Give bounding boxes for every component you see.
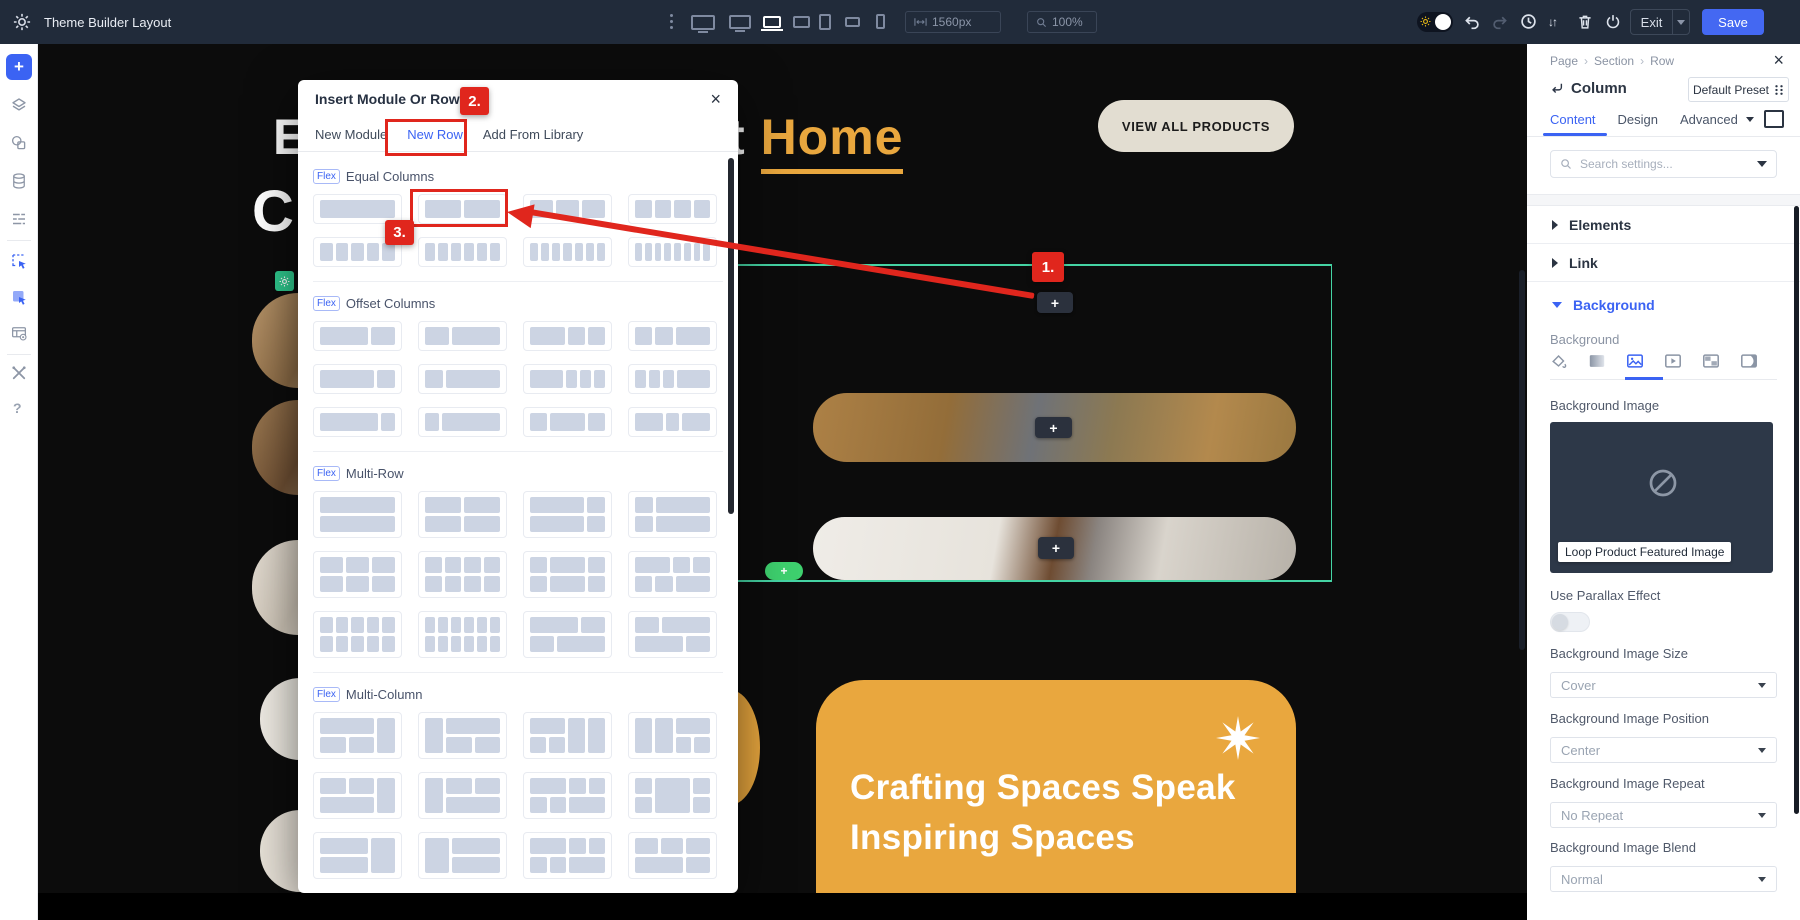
search-input[interactable] [1578, 156, 1751, 172]
row-layout-option[interactable] [418, 321, 507, 351]
breadcrumb[interactable]: Page›Section›Row [1550, 54, 1674, 68]
row-layout-option[interactable] [523, 772, 612, 819]
dropdown-background-image-size[interactable]: Cover [1550, 672, 1777, 698]
tablet-landscape-icon[interactable] [793, 16, 810, 28]
group-link[interactable]: Link [1527, 244, 1800, 282]
modal-scrollbar[interactable] [728, 158, 734, 514]
tab-design[interactable]: Design [1618, 112, 1658, 127]
save-button[interactable]: Save [1702, 9, 1764, 35]
canvas-scrollbar[interactable] [1519, 270, 1525, 650]
row-layout-option[interactable] [418, 491, 507, 538]
row-layout-option[interactable] [418, 551, 507, 598]
row-layout-option[interactable] [418, 832, 507, 879]
field-label: Background Image Position [1550, 711, 1709, 726]
more-options-icon[interactable] [670, 14, 673, 32]
no-image-icon [1648, 468, 1678, 498]
flex-badge: Flex [313, 466, 340, 481]
layout-section-label: Offset Columns [346, 296, 435, 311]
group-background[interactable]: Background [1527, 282, 1800, 328]
trash-icon[interactable] [1577, 13, 1593, 30]
selection-border-right [1331, 264, 1332, 582]
field-label: Background Image Blend [1550, 840, 1696, 855]
panel-scrollbar[interactable] [1794, 206, 1799, 814]
view-all-products-button[interactable]: VIEW ALL PRODUCTS [1098, 100, 1294, 152]
dropdown-background-image-blend[interactable]: Normal [1550, 866, 1777, 892]
promo-card-line-2: Inspiring Spaces [850, 818, 1135, 858]
tablet-portrait-icon[interactable] [819, 14, 831, 30]
exit-dropdown-caret[interactable] [1673, 20, 1689, 25]
add-module-plus-button[interactable]: + [1037, 292, 1073, 313]
zoom-value: 100% [1052, 15, 1083, 29]
panel-close-icon[interactable]: × [1773, 50, 1784, 71]
row-layout-option[interactable] [523, 491, 612, 538]
select-module-filled-icon[interactable] [10, 288, 28, 306]
field-label: Background Image Repeat [1550, 776, 1705, 791]
top-bar: Theme Builder Layout 1560px 100% [0, 0, 1800, 44]
row-layout-option[interactable] [313, 712, 402, 759]
canvas-width-control[interactable]: 1560px [905, 11, 1001, 33]
modal-tab-add-from-library[interactable]: Add From Library [483, 127, 583, 142]
builder-canvas: E t Home C VIEW ALL PRODUCTS + + + + [38, 44, 1527, 893]
background-image-label: Background Image [1550, 398, 1659, 413]
divi-theme-builder: Theme Builder Layout 1560px 100% [0, 0, 1800, 920]
dropdown-caret-icon [1758, 813, 1766, 818]
sun-icon [1420, 16, 1431, 27]
row-layout-option[interactable] [313, 832, 402, 879]
row-layout-option[interactable] [628, 772, 717, 819]
breadcrumb-item-row[interactable]: Row [1650, 54, 1674, 68]
bg-image-icon[interactable] [1626, 352, 1644, 370]
flex-badge: Flex [313, 296, 340, 311]
starburst-icon [1216, 716, 1260, 760]
promo-card-line-1: Crafting Spaces Speak [850, 768, 1236, 808]
row-layout-option[interactable] [418, 611, 507, 658]
design-shapes-icon[interactable] [10, 134, 28, 152]
selection-border-top [700, 264, 1332, 266]
modal-tabs: New ModuleNew RowAdd From Library [298, 118, 738, 152]
builder-left-sidebar: + ? [0, 44, 38, 920]
tools-icon[interactable] [10, 364, 28, 382]
add-row-green-button[interactable]: + [765, 562, 803, 580]
search-icon [1560, 158, 1572, 170]
zoom-magnifier-icon [1036, 17, 1047, 28]
row-layout-option[interactable] [418, 772, 507, 819]
settings-gear-icon[interactable] [13, 13, 31, 31]
modal-body: FlexEqual ColumnsFlexOffset ColumnsFlexM… [298, 153, 738, 893]
hero-heading-fragment-left-2: C [252, 178, 295, 245]
tab-content[interactable]: Content [1550, 112, 1596, 127]
row-layout-option[interactable] [523, 321, 612, 351]
row-layout-option[interactable] [628, 712, 717, 759]
panel-title: Column [1571, 80, 1627, 97]
row-layout-option[interactable] [523, 194, 612, 224]
row-layout-option[interactable] [313, 321, 402, 351]
row-layout-option[interactable] [313, 237, 402, 267]
layout-section-label: Multi-Row [346, 466, 404, 481]
bg-pattern-icon[interactable] [1702, 352, 1720, 370]
width-arrows-icon [914, 17, 927, 27]
power-icon[interactable] [1605, 13, 1621, 30]
promo-card[interactable]: Crafting Spaces Speak Inspiring Spaces [816, 680, 1296, 893]
layout-section-label: Multi-Column [346, 687, 423, 702]
dropdown-background-image-position[interactable]: Center [1550, 737, 1777, 763]
chevron-right-icon [1552, 220, 1558, 230]
desktop-large-icon[interactable] [691, 15, 715, 30]
insert-module-modal: Insert Module Or Row × New ModuleNew Row… [298, 80, 738, 893]
add-element-button[interactable]: + [6, 54, 32, 80]
dropdown-caret-icon [1758, 748, 1766, 753]
default-preset-button[interactable]: Default Preset [1688, 77, 1789, 102]
flex-badge: Flex [313, 169, 340, 184]
bg-gradient-icon[interactable] [1588, 352, 1606, 370]
home-link[interactable]: Home [761, 109, 904, 174]
exit-label: Exit [1631, 15, 1672, 30]
add-module-plus-button[interactable]: + [1038, 537, 1074, 559]
row-layout-option[interactable] [313, 194, 402, 224]
row-layout-option[interactable] [418, 237, 507, 267]
parallax-toggle[interactable] [1550, 612, 1590, 632]
chevron-down-icon [1552, 302, 1562, 308]
row-layout-option[interactable] [418, 407, 507, 437]
dynamic-content-tooltip: Loop Product Featured Image [1558, 542, 1731, 562]
flex-badge: Flex [313, 687, 340, 702]
selection-border-bottom [727, 580, 1332, 582]
row-layout-option[interactable] [313, 611, 402, 658]
modal-header: Insert Module Or Row × [298, 80, 738, 118]
canvas-width-value: 1560px [932, 15, 971, 29]
row-layout-option[interactable] [628, 551, 717, 598]
row-layout-option[interactable] [313, 772, 402, 819]
parallax-label: Use Parallax Effect [1550, 588, 1660, 603]
dropdown-caret-icon [1758, 683, 1766, 688]
field-label: Background Image Size [1550, 646, 1688, 661]
background-type-icons [1550, 352, 1758, 370]
modal-close-icon[interactable]: × [710, 90, 721, 108]
layout-title: Theme Builder Layout [44, 15, 171, 30]
row-layout-option[interactable] [313, 364, 402, 394]
theme-builder-settings-icon[interactable] [10, 324, 28, 342]
row-layout-option[interactable] [313, 407, 402, 437]
phone-portrait-icon[interactable] [876, 14, 885, 29]
background-image-preview[interactable]: Loop Product Featured Image [1550, 422, 1773, 573]
row-layout-option[interactable] [523, 551, 612, 598]
hero-heading-fragment: t Home [728, 108, 903, 166]
dropdown-background-image-repeat[interactable]: No Repeat [1550, 802, 1777, 828]
row-layout-option[interactable] [418, 194, 507, 224]
row-layout-option[interactable] [523, 611, 612, 658]
undo-icon[interactable] [1463, 13, 1480, 30]
expand-square-icon[interactable] [1764, 110, 1784, 128]
phone-landscape-icon[interactable] [845, 17, 860, 27]
layout-section-label: Equal Columns [346, 169, 434, 184]
group-elements[interactable]: Elements [1527, 206, 1800, 244]
row-layout-option[interactable] [628, 832, 717, 879]
row-layout-option[interactable] [523, 407, 612, 437]
row-layout-option[interactable] [628, 491, 717, 538]
database-icon[interactable] [10, 172, 28, 190]
row-layout-option[interactable] [628, 321, 717, 351]
row-layout-option[interactable] [523, 237, 612, 267]
select-module-icon[interactable] [10, 252, 28, 270]
modal-tab-new-module[interactable]: New Module [315, 127, 387, 142]
back-arrow-icon[interactable] [1550, 82, 1564, 96]
tab-overflow-caret[interactable] [1746, 117, 1754, 122]
chevron-right-icon [1552, 258, 1558, 268]
dropdown-caret-icon [1758, 877, 1766, 882]
background-label: Background [1550, 332, 1619, 347]
bg-color-icon[interactable] [1550, 352, 1568, 370]
sort-arrows-icon[interactable]: ↓↑ [1548, 15, 1556, 29]
panel-tabs: ContentDesignAdvanced [1550, 112, 1738, 127]
row-layout-option[interactable] [628, 364, 717, 394]
desktop-icon[interactable] [729, 15, 751, 29]
preset-dots-icon [1774, 84, 1784, 96]
exit-button[interactable]: Exit [1630, 9, 1690, 35]
zoom-control[interactable]: 100% [1027, 11, 1097, 33]
add-module-plus-button[interactable]: + [1035, 417, 1072, 438]
bg-video-icon[interactable] [1664, 352, 1682, 370]
row-layout-option[interactable] [628, 611, 717, 658]
tab-advanced[interactable]: Advanced [1680, 112, 1738, 127]
row-layout-option[interactable] [628, 237, 717, 267]
bg-mask-icon[interactable] [1740, 352, 1758, 370]
row-layout-option[interactable] [523, 712, 612, 759]
modal-tab-new-row[interactable]: New Row [407, 127, 463, 142]
settings-search[interactable] [1550, 150, 1777, 178]
row-layout-option[interactable] [313, 551, 402, 598]
row-layout-option[interactable] [628, 407, 717, 437]
breadcrumb-item-page[interactable]: Page [1550, 54, 1578, 68]
help-icon[interactable]: ? [13, 400, 22, 416]
row-layout-option[interactable] [523, 832, 612, 879]
field-list-icon[interactable] [10, 210, 28, 228]
modal-title: Insert Module Or Row [315, 91, 710, 107]
section-settings-gear-button[interactable] [275, 271, 294, 291]
builder-mode-toggle[interactable] [1417, 12, 1453, 32]
laptop-icon[interactable] [763, 16, 781, 28]
breadcrumb-item-section[interactable]: Section [1594, 54, 1634, 68]
history-clock-icon[interactable] [1520, 13, 1537, 30]
row-layout-option[interactable] [628, 194, 717, 224]
row-layout-option[interactable] [418, 364, 507, 394]
redo-icon[interactable] [1492, 13, 1509, 30]
row-layout-option[interactable] [523, 364, 612, 394]
settings-panel: Page›Section›Row × Column Default Preset… [1527, 44, 1800, 920]
filter-icon[interactable] [1757, 161, 1767, 167]
row-layout-option[interactable] [313, 491, 402, 538]
layers-icon[interactable] [10, 96, 28, 114]
row-layout-option[interactable] [418, 712, 507, 759]
toggle-knob [1435, 14, 1451, 30]
